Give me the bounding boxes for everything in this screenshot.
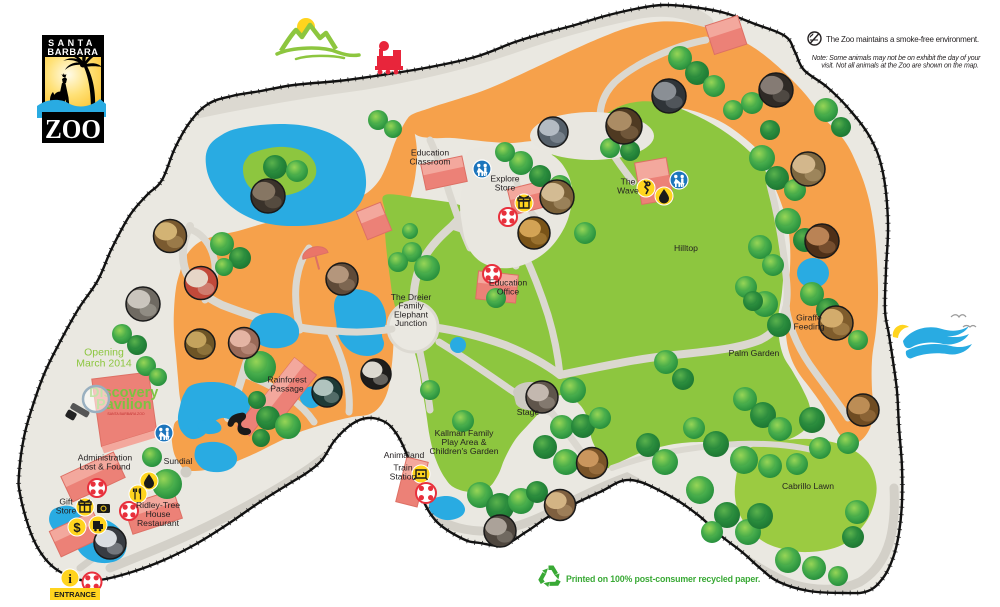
svg-text:$: $ — [73, 520, 81, 535]
svg-text:Sundial: Sundial — [164, 456, 193, 466]
svg-text:visit. Not all animals at the: visit. Not all animals at the Zoo are sh… — [821, 63, 979, 70]
svg-text:OpeningMarch 2014: OpeningMarch 2014 — [76, 347, 132, 370]
svg-text:The DreierFamilyElephantJuncti: The DreierFamilyElephantJunction — [391, 292, 432, 328]
svg-text:Printed on 100% post-consumer: Printed on 100% post-consumer recycled p… — [566, 574, 760, 584]
svg-text:EducationClassroom: EducationClassroom — [409, 148, 450, 167]
svg-text:Animaland: Animaland — [384, 450, 425, 460]
svg-text:The Zoo maintains a smoke-free: The Zoo maintains a smoke-free environme… — [826, 35, 979, 44]
svg-text:Cabrillo Lawn: Cabrillo Lawn — [782, 481, 834, 491]
svg-text:BARBARA: BARBARA — [47, 47, 98, 57]
svg-text:RainforestPassage: RainforestPassage — [267, 375, 307, 394]
svg-text:TrainStation: TrainStation — [390, 463, 417, 482]
svg-text:ENTRANCE: ENTRANCE — [54, 590, 96, 599]
svg-text:SANTA BARBARA ZOO: SANTA BARBARA ZOO — [107, 412, 145, 416]
svg-text:Stage: Stage — [517, 407, 540, 417]
svg-text:Note: Some animals may not be: Note: Some animals may not be on exhibit… — [812, 55, 981, 62]
svg-text:Hilltop: Hilltop — [674, 243, 698, 253]
svg-text:i: i — [68, 571, 72, 586]
svg-text:GiraffeFeeding: GiraffeFeeding — [793, 313, 824, 332]
svg-text:AdministrationLost & Found: AdministrationLost & Found — [78, 453, 133, 472]
svg-text:ZOO: ZOO — [45, 114, 101, 144]
svg-text:Palm Garden: Palm Garden — [729, 348, 780, 358]
